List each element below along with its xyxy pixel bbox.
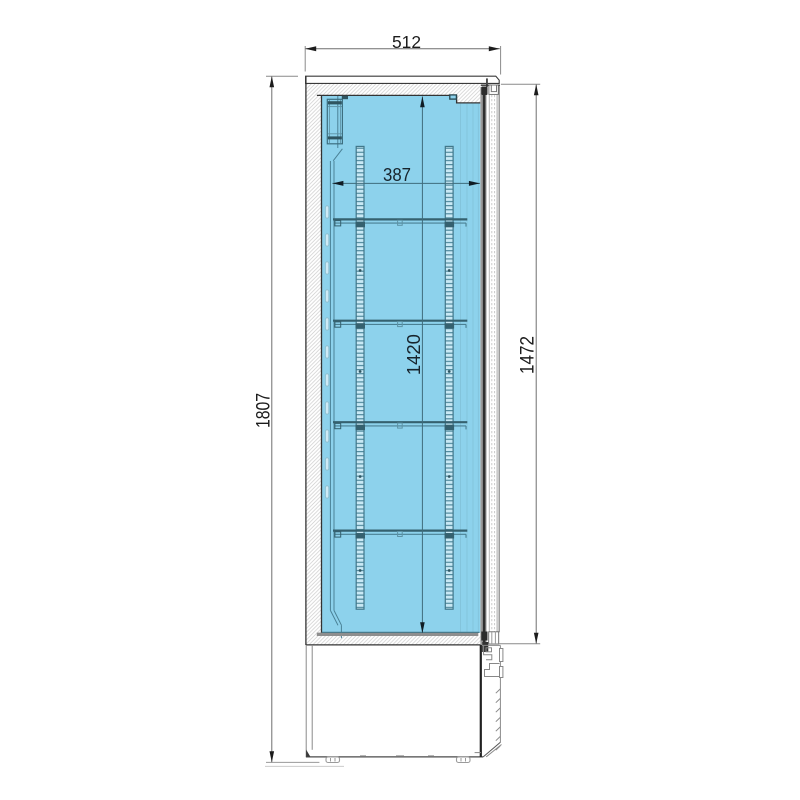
svg-text:1420: 1420 bbox=[403, 334, 424, 375]
svg-text:512: 512 bbox=[392, 32, 421, 52]
svg-text:1807: 1807 bbox=[253, 393, 274, 428]
svg-text:387: 387 bbox=[383, 165, 411, 185]
svg-text:1472: 1472 bbox=[517, 336, 539, 374]
